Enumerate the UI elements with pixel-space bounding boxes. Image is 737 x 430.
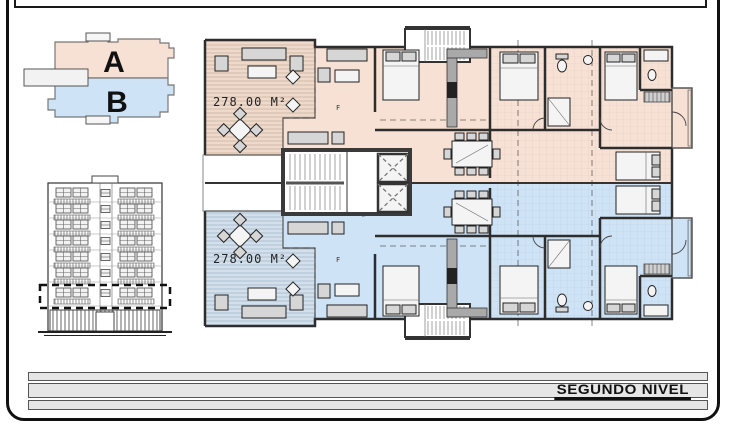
key-plan-label-a: A	[103, 46, 125, 79]
level-name-label: SEGUNDO NIVEL	[554, 382, 691, 400]
floor-plan: 278.00 M² 278.00 M² F F	[203, 26, 692, 340]
room-label-b: F	[336, 256, 340, 264]
footer-bar-top	[28, 372, 708, 381]
key-plan-label-b: B	[106, 86, 128, 119]
building-elevation	[38, 176, 172, 336]
drawing-sheet: A B	[0, 0, 737, 430]
elevator-icon	[378, 154, 408, 182]
key-plan: A B	[24, 33, 174, 124]
elevator-icon	[378, 184, 408, 212]
room-label-a: F	[336, 104, 340, 112]
footer-bar-bottom	[28, 400, 708, 410]
stair-core	[283, 150, 410, 214]
area-label-b: 278.00 M²	[213, 252, 287, 266]
footer-bar-title: SEGUNDO NIVEL	[28, 383, 708, 398]
area-label-a: 278.00 M²	[213, 95, 287, 109]
